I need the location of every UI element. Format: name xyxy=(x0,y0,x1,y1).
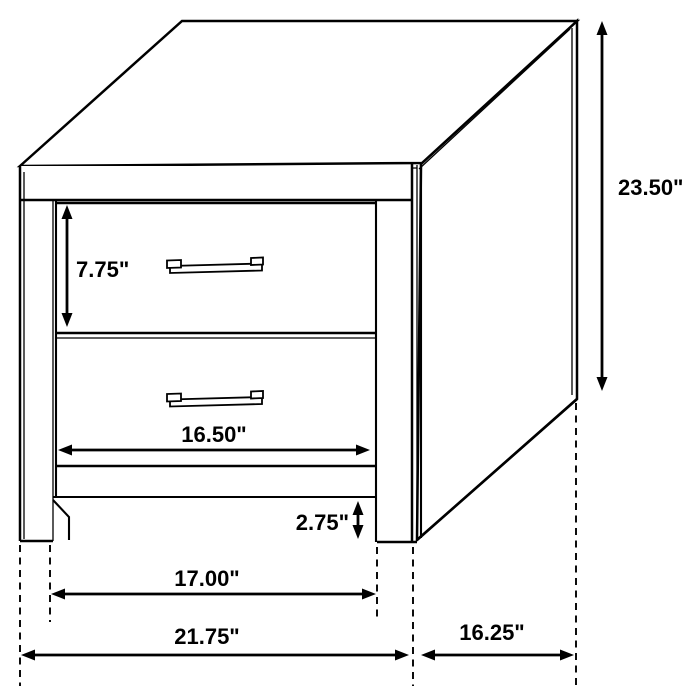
handle-bar xyxy=(170,264,262,274)
arrowhead-down xyxy=(597,377,608,391)
dimension-label: 21.75" xyxy=(174,624,239,649)
handle-bar xyxy=(170,397,262,407)
handle-right-cap xyxy=(251,258,263,266)
arrowhead-up xyxy=(597,21,608,35)
arrowhead-left xyxy=(21,650,35,661)
dimension-label: 17.00" xyxy=(174,566,239,591)
handle-right-cap xyxy=(251,391,263,399)
arrowhead-left xyxy=(51,589,65,600)
dimension-diagram: 23.50"7.75"16.50"2.75"17.00"21.75"16.25" xyxy=(0,0,700,700)
nightstand-diagram-svg: 23.50"7.75"16.50"2.75"17.00"21.75"16.25" xyxy=(0,0,700,700)
dimension-label: 2.75" xyxy=(296,510,349,535)
dimension-label: 16.50" xyxy=(181,422,246,447)
handle-left-cap xyxy=(167,260,181,268)
arrowhead-right xyxy=(560,650,574,661)
handle-left-cap xyxy=(167,394,181,402)
dimension-leg-span: 17.00" xyxy=(51,566,376,600)
dimension-label: 23.50" xyxy=(618,175,683,200)
arrowhead-left xyxy=(421,650,435,661)
dimension-label: 16.25" xyxy=(459,620,524,645)
dimension-overall-height: 23.50" xyxy=(597,21,684,391)
dimension-depth: 16.25" xyxy=(421,620,574,661)
dimension-label: 7.75" xyxy=(76,257,129,282)
dimension-overall-width: 21.75" xyxy=(21,624,409,661)
front-face xyxy=(20,166,412,541)
arrowhead-right xyxy=(362,589,376,600)
arrowhead-right xyxy=(395,650,409,661)
